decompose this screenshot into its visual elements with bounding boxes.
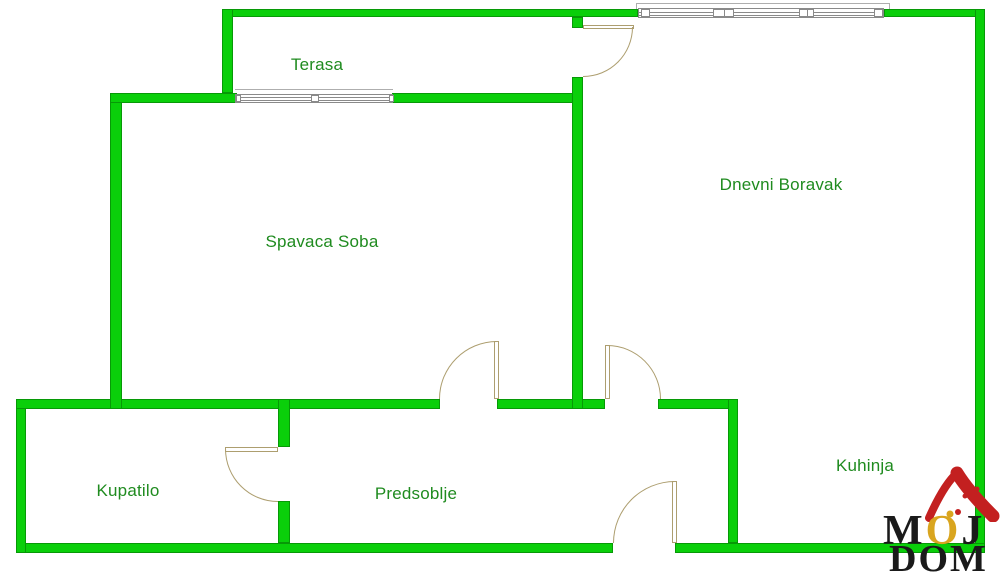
window-mullion xyxy=(799,9,814,17)
window-mullion-divider xyxy=(807,10,808,16)
window-end-post xyxy=(389,95,394,102)
window-glazing-line xyxy=(639,12,883,13)
door-dnevni-arc xyxy=(607,345,661,399)
wall-terasa-spavaca-a xyxy=(110,93,237,103)
room-label-predsoblje: Predsoblje xyxy=(375,484,457,504)
wall-spavaca-dnevni-stub xyxy=(572,17,583,28)
window-glazing-line xyxy=(639,15,883,16)
room-label-dnevni-boravak: Dnevni Boravak xyxy=(720,175,843,195)
window-mullion xyxy=(713,9,734,17)
wall-spavaca-left xyxy=(110,93,122,409)
wall-middle-a xyxy=(16,399,440,409)
wall-kupatilo-right-top xyxy=(278,399,290,447)
logo-word-dom: DOM xyxy=(889,540,988,572)
wall-middle-b xyxy=(497,399,605,409)
door-spavaca-arc xyxy=(439,341,497,399)
wall-top-right-segment xyxy=(884,9,985,17)
window-sill-terasa xyxy=(235,89,393,91)
door-entrance-arc xyxy=(613,481,675,543)
room-label-spavaca-soba: Spavaca Soba xyxy=(266,232,379,252)
wall-kupatilo-right-bottom xyxy=(278,501,290,543)
window-dnevni-boravak xyxy=(638,8,884,18)
window-end-post xyxy=(874,9,883,17)
window-mullion-divider xyxy=(724,10,725,16)
room-label-kupatilo: Kupatilo xyxy=(96,481,159,501)
wall-terasa-spavaca-b xyxy=(392,93,583,103)
wall-top-left-segment xyxy=(222,9,638,17)
wall-middle-c xyxy=(658,399,738,409)
window-spavaca-soba xyxy=(235,94,393,103)
door-terasa-arc xyxy=(583,27,633,77)
wall-spavaca-dnevni xyxy=(572,77,583,409)
window-end-post xyxy=(641,9,650,17)
brand-logo: MOJ DOM xyxy=(883,466,1000,572)
room-label-terasa: Terasa xyxy=(291,55,343,75)
door-kupatilo-arc xyxy=(225,449,278,502)
wall-terasa-left xyxy=(222,9,233,93)
wall-kupatilo-left xyxy=(16,399,26,553)
floor-plan: Terasa Spavaca Soba Dnevni Boravak Kupat… xyxy=(0,0,1000,572)
wall-predsoblje-kuhinja xyxy=(728,399,738,543)
window-mullion xyxy=(311,95,319,102)
wall-bottom-left-segment xyxy=(16,543,613,553)
window-end-post xyxy=(236,95,241,102)
